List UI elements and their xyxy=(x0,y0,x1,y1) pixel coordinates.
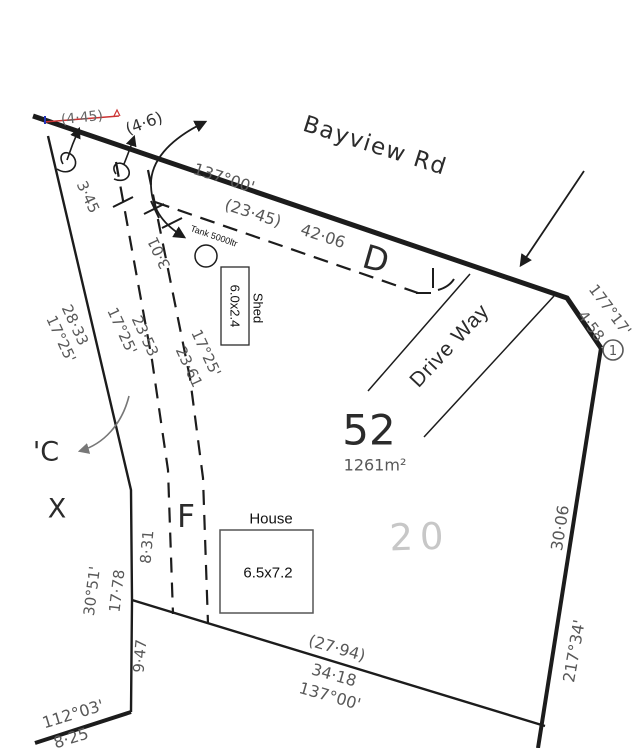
loop-squiggle-1-icon xyxy=(57,153,76,172)
tank-circle xyxy=(195,245,217,267)
red-caret-mark-icon xyxy=(114,110,120,116)
curved-arrow-c-icon xyxy=(80,396,129,451)
lot-area: 1261m² xyxy=(344,456,407,475)
tick-marks xyxy=(113,197,182,228)
west-boundary-line xyxy=(48,136,132,712)
corner-marker-number: 1 xyxy=(609,344,617,359)
shed-size: 6.0x2.4 xyxy=(228,285,243,328)
house-label: House xyxy=(249,511,292,528)
shed-label: Shed xyxy=(251,293,266,323)
dim-9-47: 9·47 xyxy=(130,639,151,674)
straight-arrow-icon xyxy=(521,171,584,265)
letter-c-label: 'C xyxy=(33,437,59,468)
dim-8-31: 8·31 xyxy=(137,530,158,565)
lot-number: 52 xyxy=(342,406,395,455)
letter-x-label: X xyxy=(48,494,67,525)
survey-plan: 1 (4·45) (4·6) Bayview Rd 137°00' (23·45… xyxy=(0,0,634,748)
dashed-hook xyxy=(416,268,454,293)
letter-f-label: F xyxy=(177,499,195,535)
house-size: 6.5x7.2 xyxy=(243,565,292,582)
underlay-lot-number: 20 xyxy=(389,514,452,559)
